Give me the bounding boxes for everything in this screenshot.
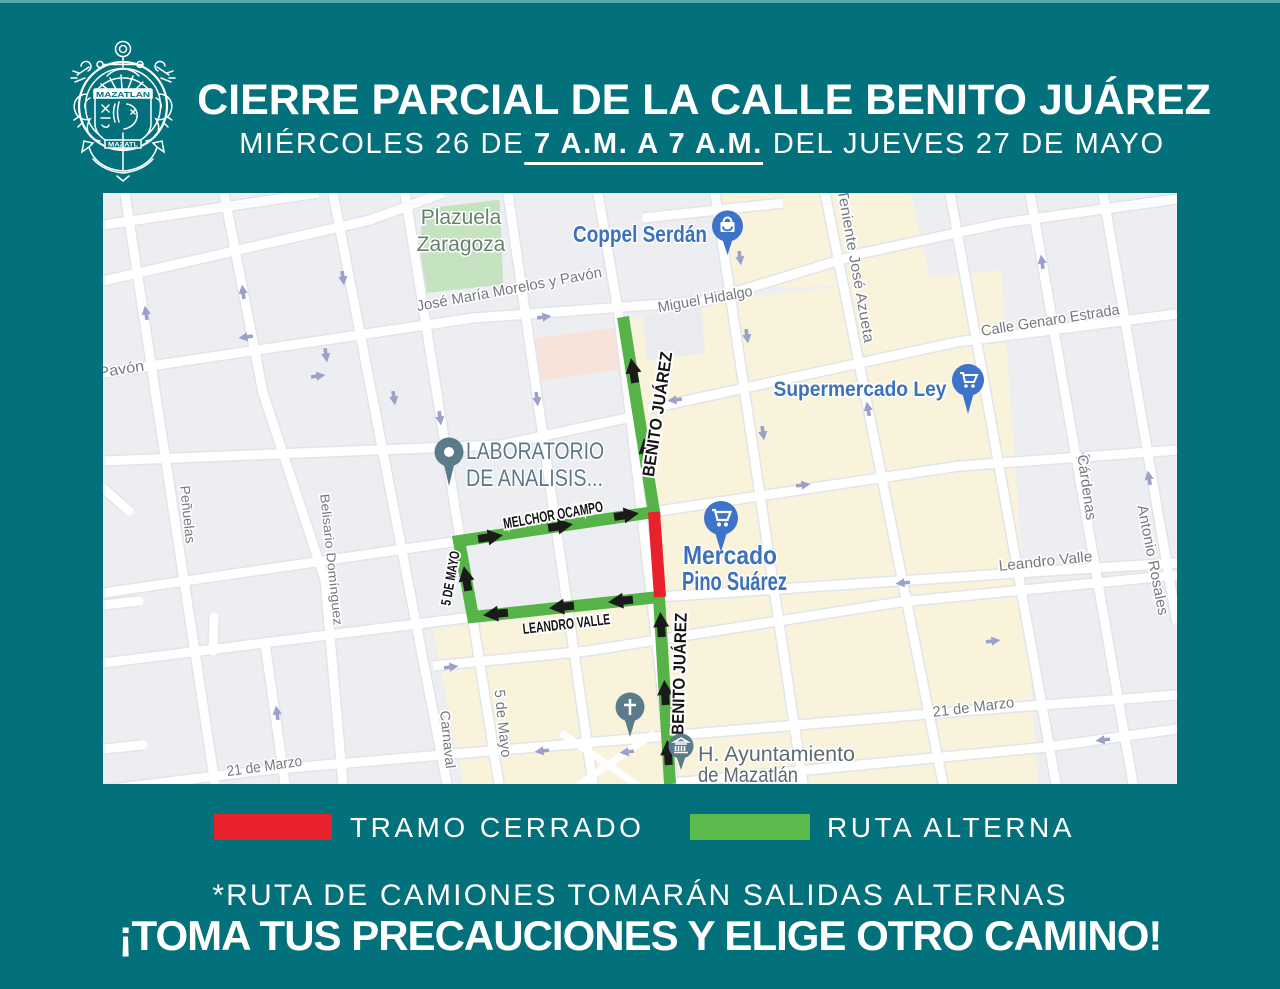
svg-text:Zaragoza: Zaragoza — [417, 233, 506, 256]
svg-text:DE ANALISIS...: DE ANALISIS... — [466, 465, 603, 492]
svg-text:Supermercado Ley: Supermercado Ley — [774, 378, 947, 401]
svg-text:de Mazatlán: de Mazatlán — [698, 764, 798, 784]
svg-text:Coppel Serdán: Coppel Serdán — [573, 221, 707, 247]
svg-text:Pino Suárez: Pino Suárez — [682, 566, 787, 596]
svg-text:H. Ayuntamiento: H. Ayuntamiento — [698, 743, 855, 766]
svg-text:LABORATORIO: LABORATORIO — [466, 438, 604, 465]
svg-text:Plazuela: Plazuela — [421, 206, 502, 229]
svg-text:BENITO JUÁREZ: BENITO JUÁREZ — [668, 613, 690, 735]
